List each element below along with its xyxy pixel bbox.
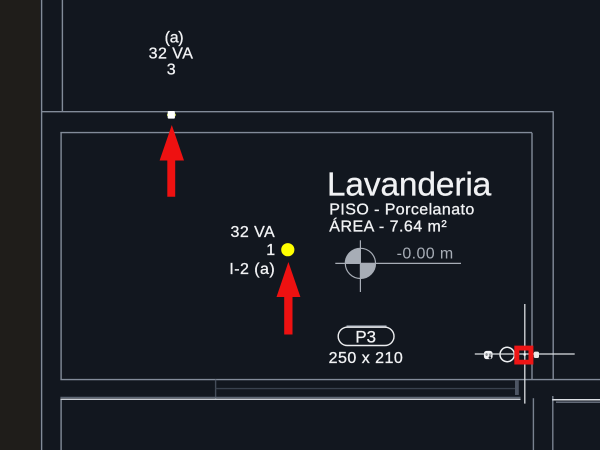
svg-text:P3: P3: [355, 328, 376, 347]
svg-text:250 x 210: 250 x 210: [329, 350, 404, 367]
svg-text:3: 3: [167, 62, 176, 79]
svg-text:Lavanderia: Lavanderia: [327, 167, 492, 204]
svg-text:ÁREA - 7.64 m²: ÁREA - 7.64 m²: [329, 216, 447, 235]
svg-text:(a): (a): [165, 30, 184, 47]
svg-text:1: 1: [266, 242, 275, 259]
svg-text:32 VA: 32 VA: [149, 46, 194, 63]
svg-text:PISO - Porcelanato: PISO - Porcelanato: [329, 202, 474, 219]
svg-text:I-2 (a): I-2 (a): [229, 261, 275, 278]
svg-text:32 VA: 32 VA: [231, 224, 276, 241]
svg-text:-0.00 m: -0.00 m: [397, 245, 454, 262]
